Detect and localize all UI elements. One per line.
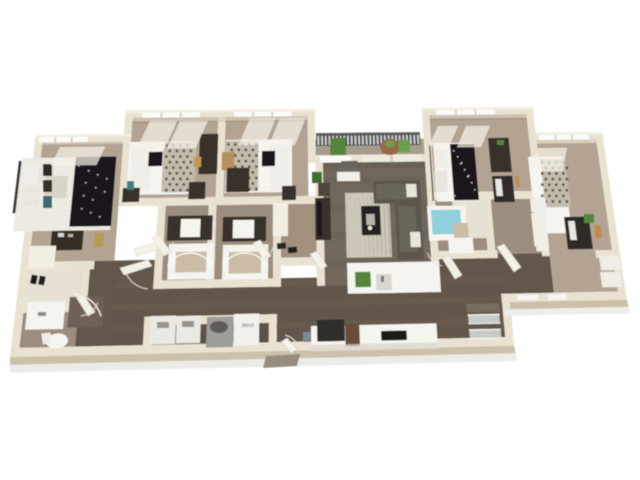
- svg-text:Mech: Mech: [242, 323, 254, 329]
